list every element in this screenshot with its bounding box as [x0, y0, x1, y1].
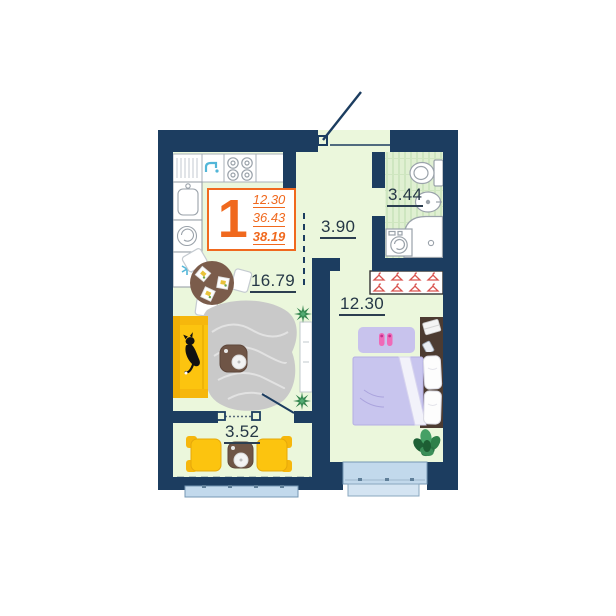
- balcony-glazing: [185, 485, 298, 497]
- bedroom-area-label: 12.30: [339, 295, 385, 316]
- bed: [353, 352, 445, 428]
- toilet: [410, 160, 443, 186]
- unit-living-area: 12.30: [253, 193, 286, 208]
- hallway-area-label: 3.90: [320, 218, 356, 239]
- balcony-area-label: 3.52: [224, 423, 260, 444]
- plant-icon: [294, 305, 312, 323]
- balcony-armchair-right: [257, 436, 292, 472]
- washing-machine-icon: [386, 229, 412, 256]
- floor-plan-drawing: [0, 0, 616, 616]
- ottoman: [220, 345, 247, 372]
- tv-stand: [300, 322, 312, 392]
- balcony-table: [228, 442, 253, 468]
- wardrobe: [370, 271, 443, 294]
- floor-plan: 1 12.30 36.43 38.19 16.79 3.90 3.44 12.3…: [0, 0, 616, 616]
- nightstand-desk: [420, 317, 443, 357]
- unit-area: 36.43: [253, 211, 286, 226]
- bedroom-window: [343, 462, 427, 496]
- kitchen-living-area-label: 16.79: [250, 272, 296, 293]
- balcony-armchair-left: [186, 436, 221, 472]
- washing-machine-icon: [173, 220, 202, 252]
- bathroom-area-label: 3.44: [387, 186, 423, 207]
- bedroom-rug: [358, 327, 415, 353]
- unit-info-badge: 1 12.30 36.43 38.19: [207, 188, 296, 251]
- unit-total-area: 38.19: [253, 230, 286, 245]
- unit-rooms-count: 1: [218, 197, 245, 241]
- kitchen-sink: [173, 182, 202, 220]
- unit-areas: 12.30 36.43 38.19: [253, 192, 286, 247]
- plant-icon: [293, 392, 311, 410]
- rug: [201, 300, 297, 410]
- sofa: [173, 316, 208, 398]
